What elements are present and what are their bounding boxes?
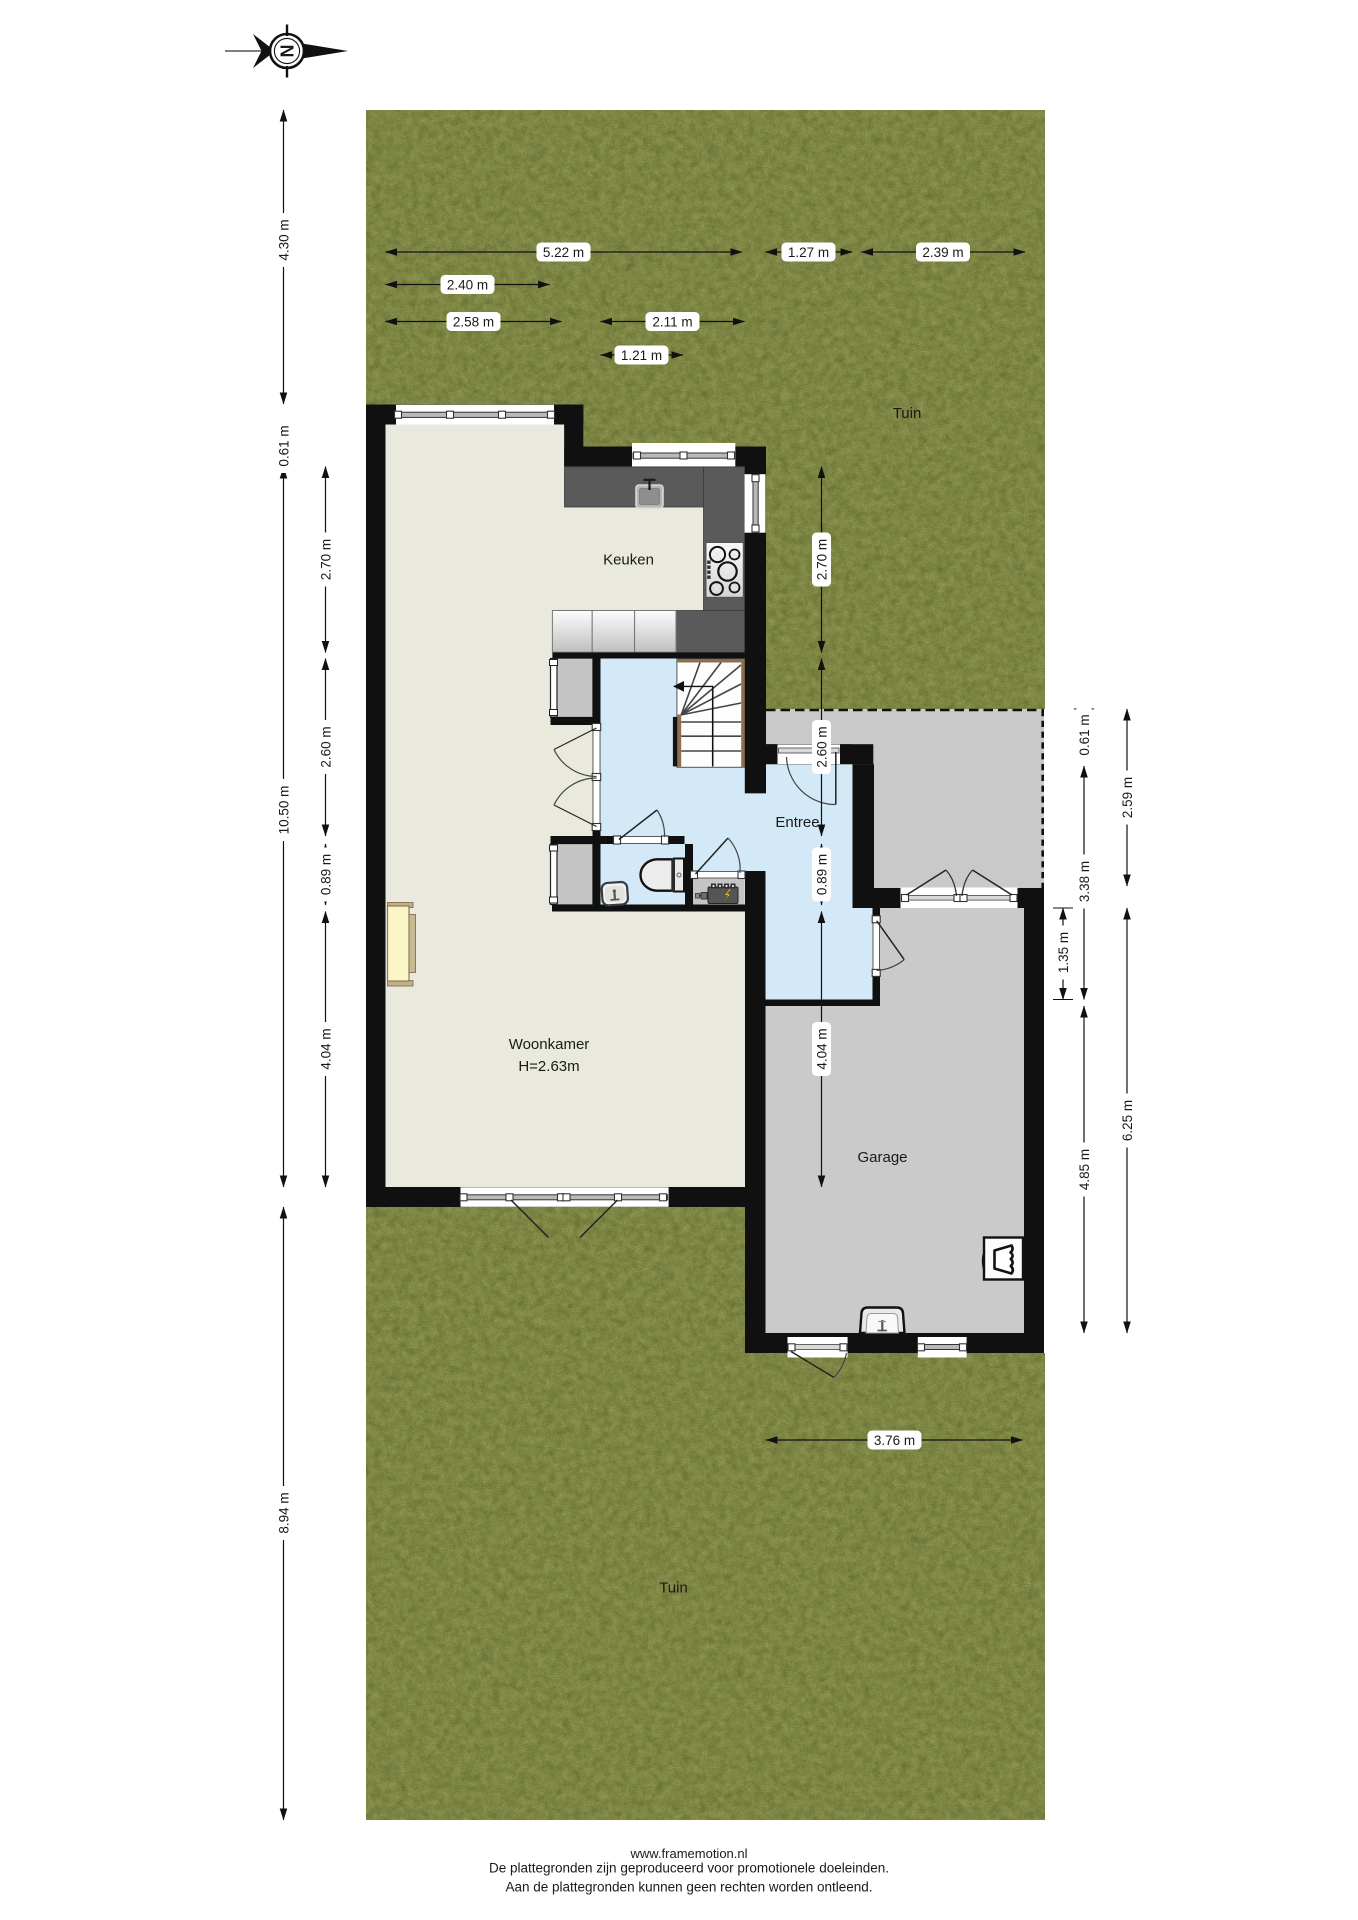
svg-text:8.94 m: 8.94 m: [277, 1492, 292, 1533]
svg-text:Woonkamer: Woonkamer: [509, 1036, 590, 1053]
svg-text:2.58 m: 2.58 m: [453, 315, 494, 330]
svg-text:0.61 m: 0.61 m: [1077, 714, 1092, 755]
svg-text:Keuken: Keuken: [603, 552, 654, 569]
svg-text:H=2.63m: H=2.63m: [518, 1058, 579, 1075]
svg-text:2.70 m: 2.70 m: [815, 539, 830, 580]
svg-text:2.39 m: 2.39 m: [922, 245, 963, 260]
svg-text:3.38 m: 3.38 m: [1077, 861, 1092, 902]
svg-text:4.04 m: 4.04 m: [815, 1028, 830, 1069]
svg-text:2.11 m: 2.11 m: [652, 315, 692, 330]
svg-text:Entree: Entree: [775, 814, 819, 831]
svg-text:2.40 m: 2.40 m: [447, 278, 488, 293]
svg-text:6.25 m: 6.25 m: [1120, 1100, 1135, 1141]
svg-text:5.22 m: 5.22 m: [543, 245, 584, 260]
svg-text:0.89 m: 0.89 m: [319, 854, 334, 895]
svg-text:2.59 m: 2.59 m: [1120, 777, 1135, 818]
svg-text:4.30 m: 4.30 m: [277, 219, 292, 260]
svg-text:4.85 m: 4.85 m: [1077, 1149, 1092, 1190]
svg-text:1.21 m: 1.21 m: [621, 348, 662, 363]
svg-text:N: N: [277, 45, 297, 58]
svg-text:Tuin: Tuin: [893, 405, 922, 422]
svg-text:3.76 m: 3.76 m: [874, 1433, 915, 1448]
svg-text:4.04 m: 4.04 m: [319, 1028, 334, 1069]
svg-text:2.70 m: 2.70 m: [319, 539, 334, 580]
svg-text:Garage: Garage: [857, 1149, 907, 1166]
svg-text:2.60 m: 2.60 m: [815, 726, 830, 767]
svg-text:1.35 m: 1.35 m: [1056, 932, 1071, 973]
svg-text:0.61 m: 0.61 m: [277, 425, 292, 466]
svg-text:www.framemotion.nl: www.framemotion.nl: [629, 1846, 747, 1861]
svg-text:1.27 m: 1.27 m: [788, 245, 829, 260]
svg-text:2.60 m: 2.60 m: [319, 726, 334, 767]
svg-text:De plattegronden zijn geproduc: De plattegronden zijn geproduceerd voor …: [489, 1861, 889, 1876]
svg-text:Aan de plattegronden kunnen ge: Aan de plattegronden kunnen geen rechten…: [505, 1880, 872, 1895]
svg-text:Tuin: Tuin: [659, 1580, 688, 1597]
svg-text:0.89 m: 0.89 m: [815, 854, 830, 895]
svg-text:10.50 m: 10.50 m: [277, 786, 292, 835]
